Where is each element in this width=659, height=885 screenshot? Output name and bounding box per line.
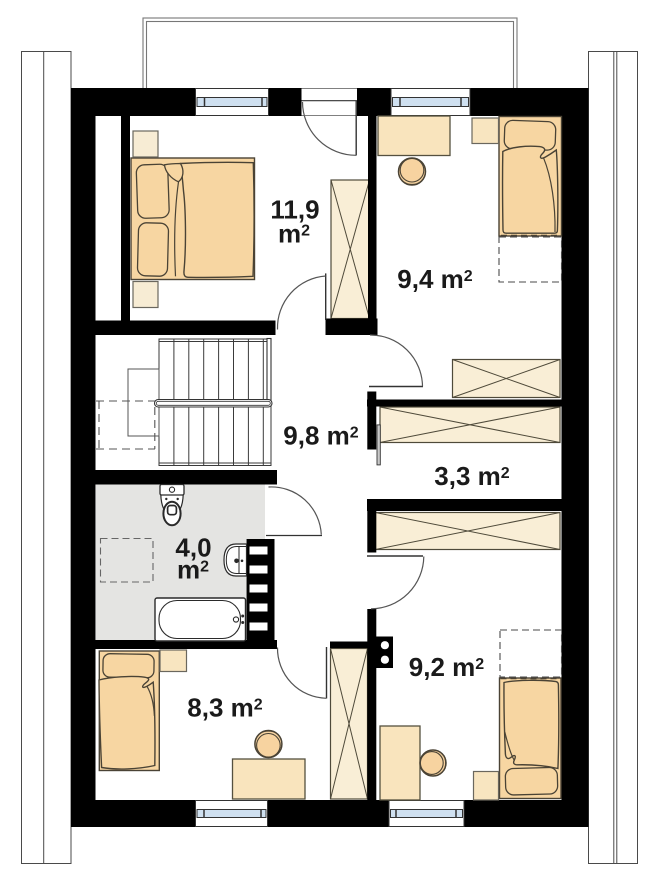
svg-text:9,2 m2: 9,2 m2	[409, 652, 485, 682]
svg-text:9,8 m2: 9,8 m2	[283, 421, 359, 451]
svg-text:9,4 m2: 9,4 m2	[397, 264, 473, 294]
svg-text:3,3 m2: 3,3 m2	[434, 461, 510, 491]
svg-text:8,3 m2: 8,3 m2	[187, 693, 263, 723]
